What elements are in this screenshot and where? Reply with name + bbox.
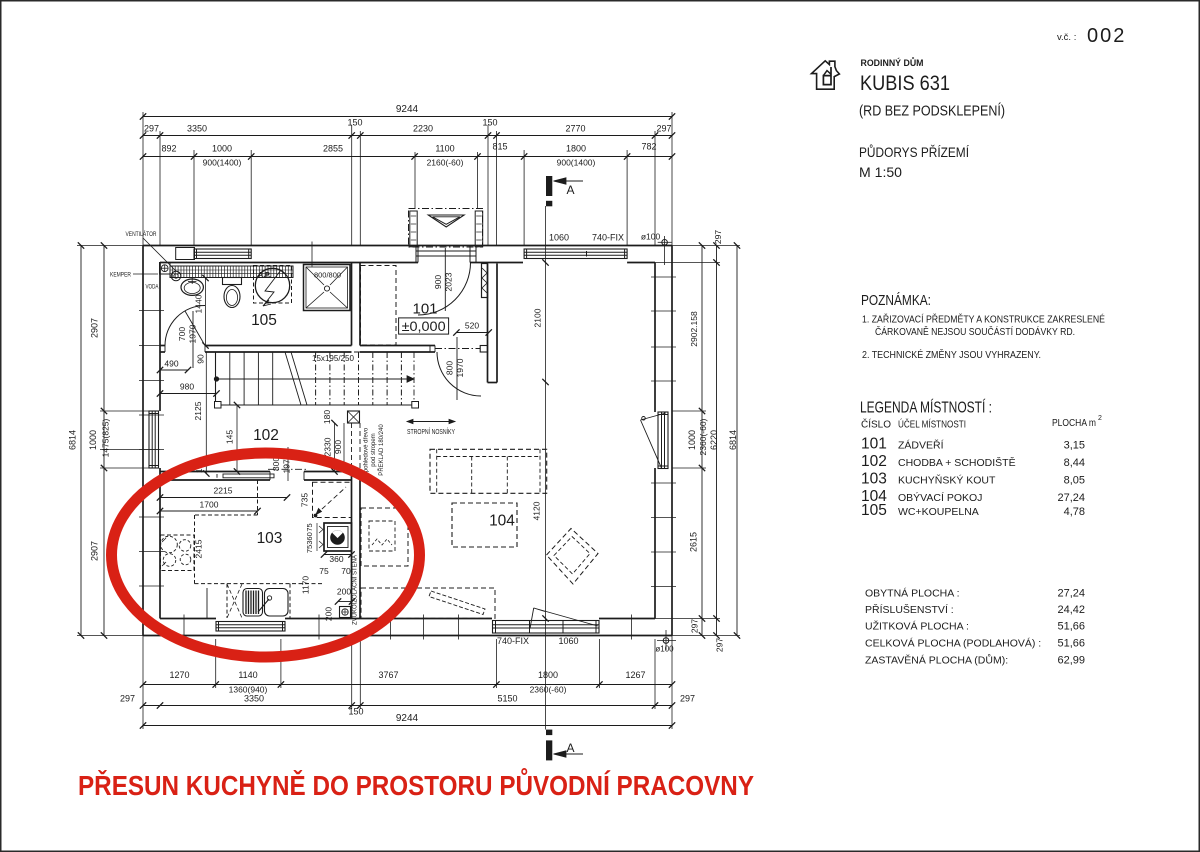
svg-text:360: 360	[329, 554, 343, 564]
svg-text:ÚČEL MÍSTNOSTI: ÚČEL MÍSTNOSTI	[898, 418, 966, 431]
svg-text:±0,000: ±0,000	[402, 319, 446, 334]
svg-text:2100: 2100	[533, 308, 543, 327]
svg-text:002: 002	[1087, 25, 1126, 47]
svg-text:735: 735	[300, 493, 310, 507]
svg-text:2615: 2615	[689, 532, 699, 552]
svg-text:24,42: 24,42	[1057, 604, 1085, 616]
svg-text:1700: 1700	[200, 500, 219, 510]
svg-text:200: 200	[324, 607, 334, 621]
svg-text:A.P.: A.P.	[258, 272, 271, 279]
svg-text:2902.158: 2902.158	[689, 311, 699, 347]
svg-text:1440: 1440	[194, 294, 204, 313]
svg-text:740-FIX: 740-FIX	[497, 636, 529, 646]
svg-text:102: 102	[253, 427, 279, 444]
svg-text:297: 297	[656, 124, 671, 134]
svg-text:(RD BEZ PODSKLEPENÍ): (RD BEZ PODSKLEPENÍ)	[859, 103, 1005, 120]
svg-text:27,24: 27,24	[1057, 492, 1085, 504]
svg-text:75: 75	[305, 523, 314, 531]
svg-text:51,66: 51,66	[1057, 621, 1085, 633]
svg-text:70: 70	[341, 566, 351, 576]
svg-text:297: 297	[713, 230, 723, 244]
svg-text:KUCHYŇSKÝ KOUT: KUCHYŇSKÝ KOUT	[898, 474, 996, 487]
svg-text:101: 101	[861, 436, 887, 453]
svg-text:900: 900	[333, 440, 343, 454]
svg-text:892: 892	[161, 144, 176, 154]
svg-text:782: 782	[641, 142, 656, 152]
svg-text:1800: 1800	[538, 670, 558, 680]
svg-text:PLOCHA m: PLOCHA m	[1052, 417, 1096, 429]
svg-text:297: 297	[120, 694, 135, 704]
svg-text:1270: 1270	[169, 670, 189, 680]
svg-text:2160(-60): 2160(-60)	[427, 158, 464, 168]
svg-text:1475(825): 1475(825)	[101, 418, 111, 457]
svg-text:2907: 2907	[90, 541, 100, 561]
svg-text:3767: 3767	[378, 670, 398, 680]
svg-text:51,66: 51,66	[1057, 638, 1085, 650]
svg-text:90: 90	[196, 354, 206, 364]
svg-text:PŘEKLAD 180/240: PŘEKLAD 180/240	[377, 424, 385, 476]
svg-text:ø100: ø100	[641, 232, 661, 242]
svg-text:145: 145	[225, 430, 235, 444]
svg-text:1267: 1267	[625, 670, 645, 680]
svg-text:101: 101	[412, 301, 437, 318]
svg-text:3350: 3350	[187, 124, 207, 134]
svg-text:pohledové dřevo: pohledové dřevo	[364, 427, 370, 472]
svg-text:1060: 1060	[558, 636, 578, 646]
svg-text:9244: 9244	[396, 104, 419, 115]
svg-text:360: 360	[305, 532, 314, 545]
svg-text:RODINNÝ DŮM: RODINNÝ DŮM	[861, 57, 924, 69]
svg-text:ø100: ø100	[655, 645, 674, 654]
svg-text:2855: 2855	[323, 144, 343, 154]
svg-text:WC+KOUPELNA: WC+KOUPELNA	[898, 506, 979, 518]
svg-text:STROPNÍ NOSNÍKY: STROPNÍ NOSNÍKY	[407, 427, 455, 436]
svg-text:ČÁRKOVANĚ NEJSOU SOUČÁSTÍ D: ČÁRKOVANĚ NEJSOU SOUČÁSTÍ DODÁVKY RD.	[875, 325, 1075, 338]
svg-text:740-FIX: 740-FIX	[592, 233, 624, 243]
svg-text:2023: 2023	[444, 272, 454, 291]
svg-text:520: 520	[465, 321, 479, 331]
svg-text:OBYTNÁ PLOCHA :: OBYTNÁ PLOCHA :	[865, 587, 960, 600]
svg-text:150: 150	[347, 118, 362, 128]
svg-text:1140: 1140	[238, 670, 257, 680]
svg-text:297: 297	[690, 619, 700, 633]
svg-text:ZASTAVĚNÁ PLOCHA (DŮM):: ZASTAVĚNÁ PLOCHA (DŮM):	[865, 654, 1008, 667]
svg-text:6220: 6220	[709, 430, 719, 450]
svg-text:CELKOVÁ PLOCHA (PODLAHOVÁ) :: CELKOVÁ PLOCHA (PODLAHOVÁ) :	[865, 637, 1041, 650]
svg-text:200: 200	[337, 587, 351, 597]
svg-text:103: 103	[861, 471, 887, 488]
svg-text:1000: 1000	[687, 430, 697, 450]
svg-text:KEMPER: KEMPER	[110, 273, 132, 279]
svg-text:180: 180	[322, 410, 332, 424]
svg-text:2230: 2230	[413, 124, 433, 134]
svg-text:8,05: 8,05	[1064, 475, 1085, 487]
svg-text:1000: 1000	[212, 144, 232, 154]
svg-text:2125: 2125	[193, 401, 203, 420]
svg-text:105: 105	[861, 502, 887, 519]
svg-text:15x195/250: 15x195/250	[312, 353, 354, 363]
svg-text:980: 980	[180, 382, 194, 392]
svg-text:2215: 2215	[214, 486, 233, 496]
svg-text:900: 900	[433, 275, 443, 289]
svg-text:OBÝVACÍ POKOJ: OBÝVACÍ POKOJ	[898, 491, 982, 504]
svg-text:VODA: VODA	[146, 285, 159, 291]
svg-text:62,99: 62,99	[1057, 655, 1085, 667]
svg-text:800: 800	[445, 361, 455, 375]
svg-text:800/800: 800/800	[314, 271, 341, 280]
svg-text:900(1400): 900(1400)	[203, 158, 242, 168]
svg-text:297: 297	[144, 124, 159, 134]
svg-text:105: 105	[251, 312, 277, 329]
svg-text:1800: 1800	[566, 144, 586, 154]
svg-text:KUBIS 631: KUBIS 631	[860, 71, 950, 95]
svg-text:815: 815	[492, 142, 507, 152]
svg-text:1970: 1970	[188, 324, 198, 343]
svg-text:2770: 2770	[565, 124, 585, 134]
svg-text:2360(-60): 2360(-60)	[698, 418, 708, 455]
svg-text:9244: 9244	[396, 713, 419, 724]
svg-text:PŮDORYS PŘÍZEMÍ: PŮDORYS PŘÍZEMÍ	[859, 143, 969, 160]
svg-text:6814: 6814	[728, 430, 738, 450]
svg-text:490: 490	[164, 359, 178, 369]
svg-text:PŘÍSLUŠENSTVÍ :: PŘÍSLUŠENSTVÍ :	[865, 603, 954, 616]
svg-text:8,44: 8,44	[1064, 457, 1085, 469]
svg-text:UŽITKOVÁ PLOCHA :: UŽITKOVÁ PLOCHA :	[865, 620, 969, 633]
svg-text:150: 150	[482, 118, 497, 128]
svg-text:1060: 1060	[549, 233, 569, 243]
svg-text:pod stropem: pod stropem	[371, 433, 377, 466]
svg-text:PŘESUN KUCHYNĚ DO PROSTORU PŮV: PŘESUN KUCHYNĚ DO PROSTORU PŮVODNÍ PRACO…	[78, 768, 754, 801]
svg-text:1100: 1100	[435, 144, 454, 154]
svg-text:75: 75	[305, 545, 314, 553]
svg-text:v.č. :: v.č. :	[1057, 32, 1076, 43]
svg-text:M 1:50: M 1:50	[859, 164, 902, 180]
svg-text:5150: 5150	[497, 694, 517, 704]
svg-text:104: 104	[489, 513, 515, 530]
svg-text:297: 297	[680, 694, 695, 704]
svg-text:75: 75	[319, 566, 329, 576]
svg-text:4,78: 4,78	[1064, 506, 1085, 518]
svg-text:3,15: 3,15	[1064, 440, 1085, 452]
svg-text:A: A	[566, 741, 574, 755]
svg-text:900(1400): 900(1400)	[557, 158, 596, 168]
svg-text:150: 150	[348, 707, 363, 717]
svg-text:A: A	[566, 183, 574, 197]
svg-text:POZNÁMKA:: POZNÁMKA:	[861, 292, 931, 309]
svg-text:ČÍSLO: ČÍSLO	[861, 418, 891, 431]
svg-text:1970: 1970	[455, 358, 465, 377]
svg-text:297: 297	[715, 638, 725, 652]
svg-text:3350: 3350	[244, 694, 264, 704]
svg-text:ZVUKOIZOLAČNÍ STĚNA: ZVUKOIZOLAČNÍ STĚNA	[351, 555, 359, 625]
svg-text:ZÁDVEŘÍ: ZÁDVEŘÍ	[898, 439, 944, 452]
svg-text:LEGENDA MÍSTNOSTÍ :: LEGENDA MÍSTNOSTÍ :	[860, 398, 992, 417]
svg-text:700: 700	[177, 327, 187, 341]
svg-text:1170: 1170	[301, 576, 311, 595]
svg-text:27,24: 27,24	[1057, 588, 1085, 600]
svg-text:4120: 4120	[532, 501, 542, 520]
svg-text:103: 103	[257, 530, 283, 547]
svg-text:CHODBA + SCHODIŠTĚ: CHODBA + SCHODIŠTĚ	[898, 456, 1016, 469]
svg-text:2. TECHNICKÉ ZMĚNY JSOU VY: 2. TECHNICKÉ ZMĚNY JSOU VYHRAZENY.	[862, 348, 1041, 361]
svg-text:2360(-60): 2360(-60)	[530, 685, 567, 695]
svg-text:1000: 1000	[88, 430, 98, 450]
svg-text:2907: 2907	[90, 318, 100, 338]
svg-text:2330: 2330	[323, 437, 333, 456]
svg-text:VENTILÁTOR: VENTILÁTOR	[126, 231, 158, 238]
svg-text:2: 2	[1098, 415, 1102, 422]
svg-text:102: 102	[861, 453, 887, 470]
svg-text:1. ZAŘIZOVACÍ PŘEDMĚTY A K: 1. ZAŘIZOVACÍ PŘEDMĚTY A KONSTRUKCE ZAKR…	[862, 313, 1105, 326]
svg-text:6814: 6814	[68, 430, 78, 450]
